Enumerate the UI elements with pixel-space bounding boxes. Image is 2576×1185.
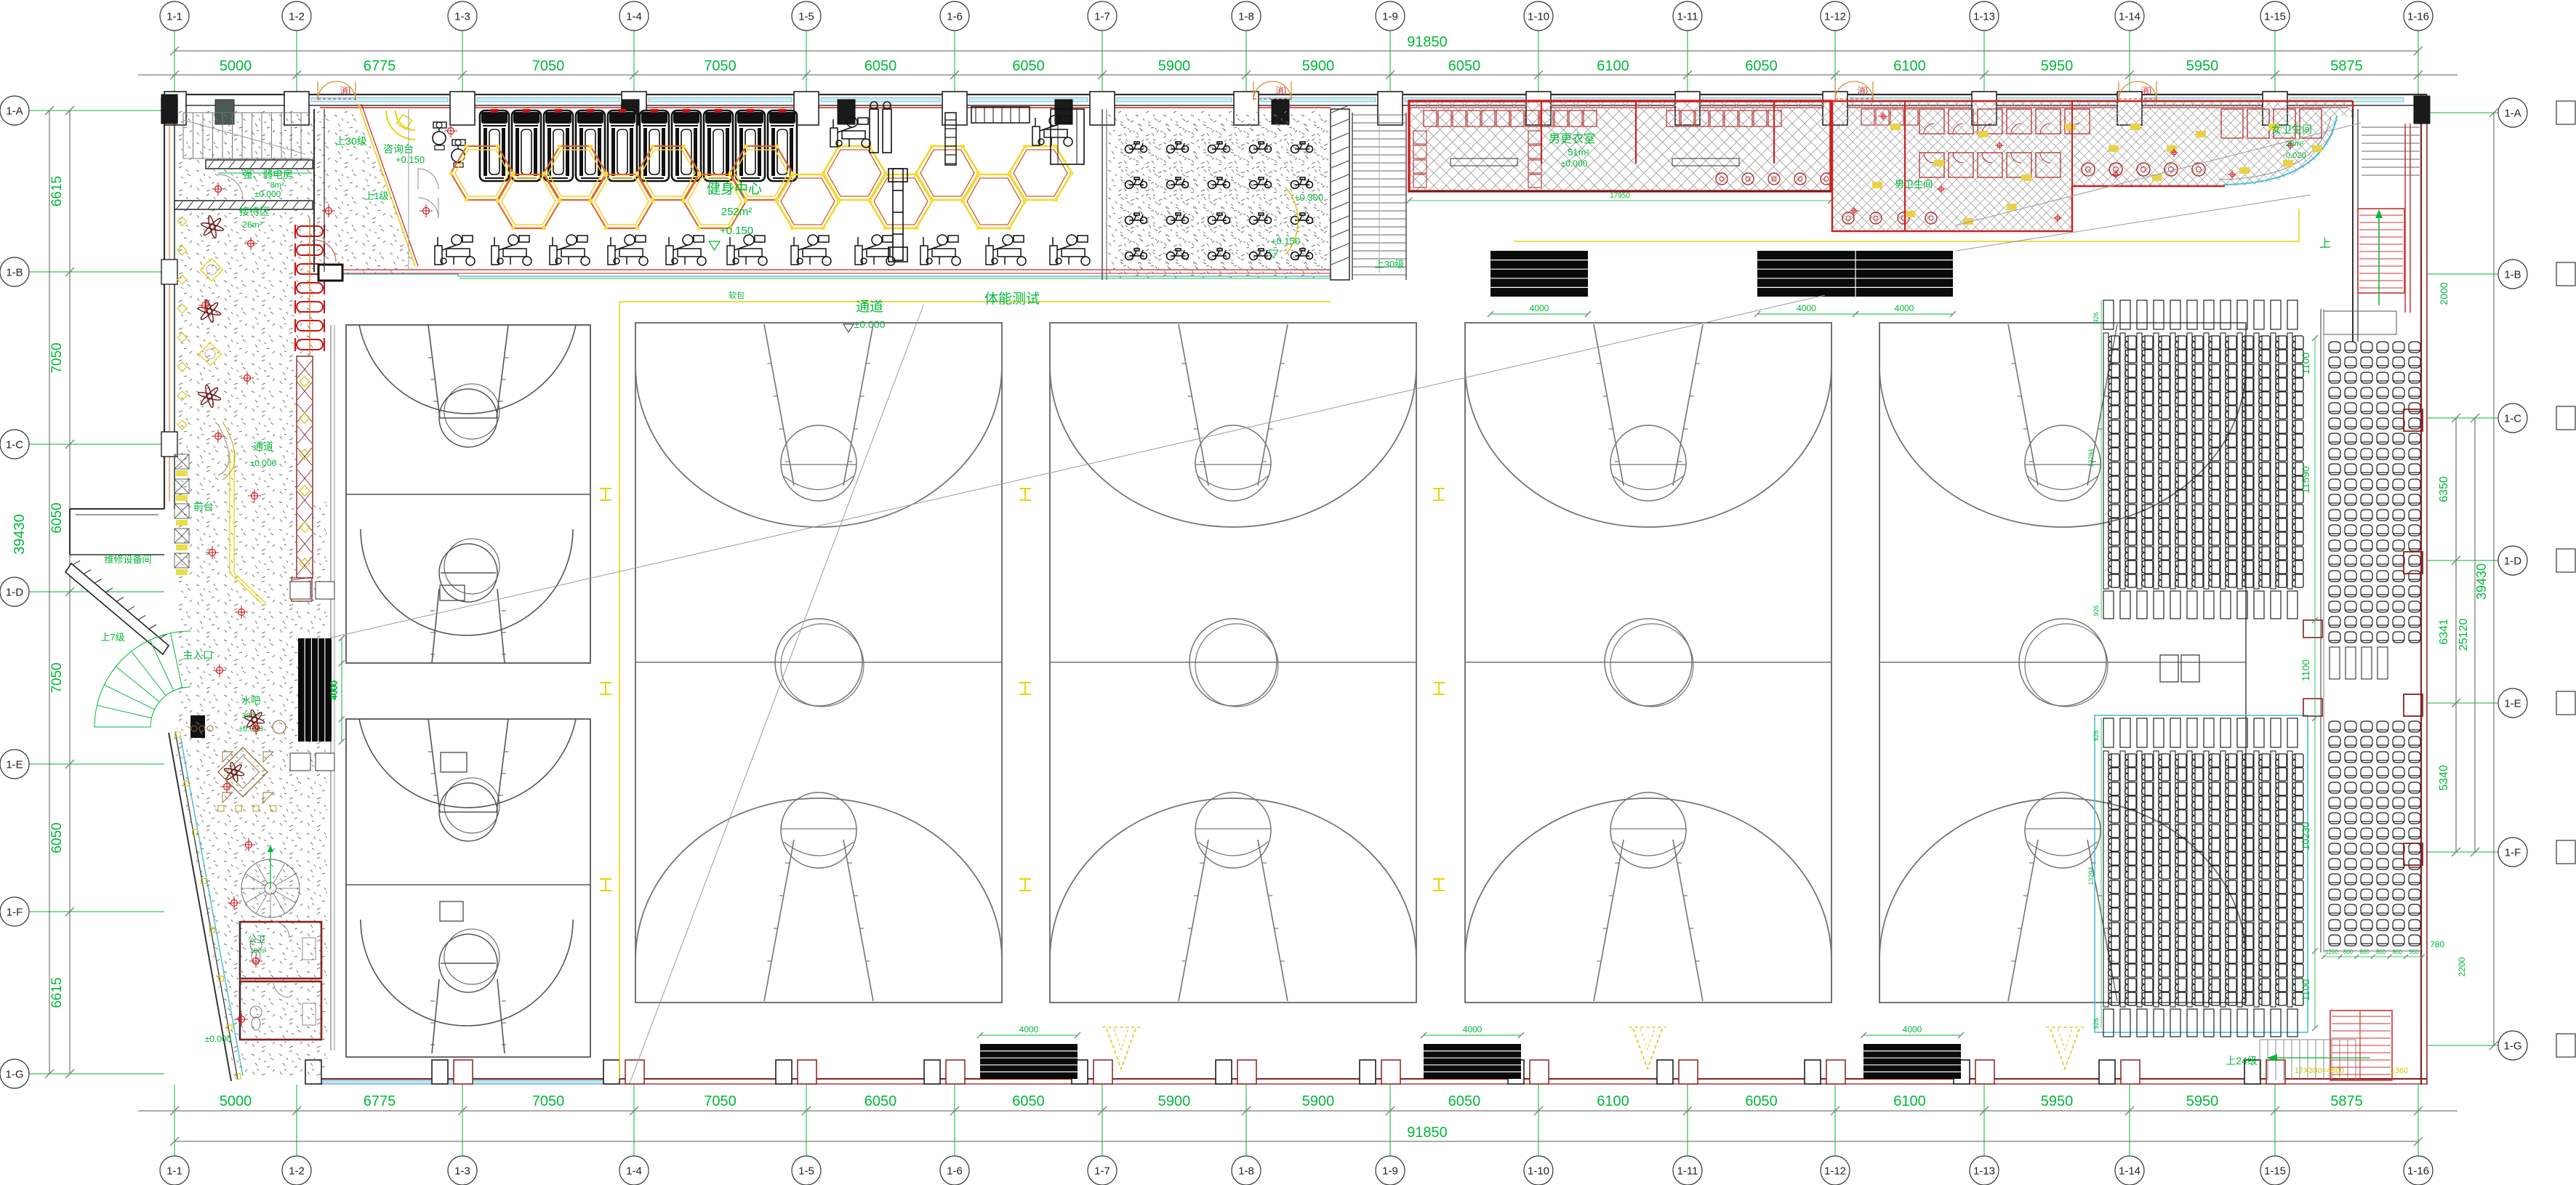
svg-text:1-A: 1-A <box>2504 108 2521 120</box>
svg-text:1-B: 1-B <box>6 267 23 279</box>
svg-text:接待区: 接待区 <box>239 206 270 217</box>
svg-text:6050: 6050 <box>864 1093 897 1109</box>
svg-text:25120: 25120 <box>2457 619 2470 651</box>
svg-text:+0.150: +0.150 <box>720 225 753 237</box>
svg-text:1-9: 1-9 <box>1382 1165 1398 1178</box>
svg-text:1-14: 1-14 <box>2119 11 2140 23</box>
svg-text:7050: 7050 <box>49 342 65 373</box>
svg-text:1-8: 1-8 <box>1238 1165 1254 1178</box>
svg-text:1200: 1200 <box>2325 949 2338 955</box>
svg-text:11590: 11590 <box>2300 466 2311 494</box>
svg-text:上30级: 上30级 <box>1375 259 1404 270</box>
svg-text:91850: 91850 <box>1407 1125 1448 1141</box>
svg-text:±0.000: ±0.000 <box>254 189 281 199</box>
svg-text:4000: 4000 <box>329 680 339 700</box>
svg-text:5950: 5950 <box>2041 58 2074 74</box>
svg-text:6050: 6050 <box>1448 58 1481 74</box>
svg-text:1-1: 1-1 <box>166 1165 182 1178</box>
svg-text:1-C: 1-C <box>2504 413 2521 425</box>
svg-text:926: 926 <box>2093 312 2100 323</box>
svg-text:800: 800 <box>2393 949 2403 955</box>
svg-text:1-2: 1-2 <box>289 11 305 23</box>
svg-text:926: 926 <box>2093 605 2100 616</box>
svg-text:6775: 6775 <box>364 1093 396 1109</box>
svg-text:维修设备间: 维修设备间 <box>104 554 151 565</box>
svg-text:+0.300: +0.300 <box>1294 192 1323 203</box>
svg-text:1100: 1100 <box>2300 979 2311 1001</box>
svg-text:1-3: 1-3 <box>454 1165 470 1178</box>
svg-text:7050: 7050 <box>532 1093 565 1109</box>
svg-text:±0.000: ±0.000 <box>250 458 277 468</box>
svg-text:健身中心: 健身中心 <box>707 181 762 197</box>
svg-text:1-C: 1-C <box>6 439 23 451</box>
svg-text:550: 550 <box>2409 949 2419 955</box>
svg-text:1-15: 1-15 <box>2264 11 2286 23</box>
svg-text:软包: 软包 <box>729 290 745 300</box>
svg-text:13294: 13294 <box>2087 867 2095 885</box>
svg-text:1-13: 1-13 <box>1973 11 1995 23</box>
svg-text:1100: 1100 <box>2300 659 2311 681</box>
svg-text:5875: 5875 <box>2330 58 2363 74</box>
svg-text:6050: 6050 <box>49 822 65 853</box>
svg-text:780: 780 <box>2430 939 2444 949</box>
svg-text:1-D: 1-D <box>6 587 23 599</box>
svg-text:800: 800 <box>2343 949 2354 955</box>
svg-text:5950: 5950 <box>2186 1093 2219 1109</box>
svg-text:1-F: 1-F <box>7 907 23 919</box>
svg-text:5900: 5900 <box>1302 58 1335 74</box>
svg-text:2200: 2200 <box>2457 957 2467 976</box>
svg-text:1-13: 1-13 <box>1973 1165 1995 1178</box>
svg-text:1-B: 1-B <box>2504 269 2521 281</box>
svg-text:咨询台: 咨询台 <box>383 143 414 155</box>
svg-text:体能测试: 体能测试 <box>984 291 1040 307</box>
svg-text:51m²: 51m² <box>1568 147 1589 158</box>
svg-text:1-10: 1-10 <box>1528 1165 1549 1178</box>
svg-text:26m²: 26m² <box>242 220 262 230</box>
svg-text:6615: 6615 <box>49 977 65 1008</box>
svg-text:5875: 5875 <box>2330 1093 2363 1109</box>
svg-text:男卫生间: 男卫生间 <box>1895 179 1933 190</box>
svg-text:1-12: 1-12 <box>1824 11 1846 23</box>
svg-text:消}: 消} <box>1276 85 1287 95</box>
svg-text:7050: 7050 <box>704 1093 737 1109</box>
svg-text:1-12: 1-12 <box>1824 1165 1846 1178</box>
svg-text:5950: 5950 <box>2041 1093 2074 1109</box>
svg-text:926: 926 <box>2093 730 2100 741</box>
svg-text:1-4: 1-4 <box>626 11 642 23</box>
svg-text:6050: 6050 <box>1448 1093 1481 1109</box>
svg-text:6100: 6100 <box>1893 58 1926 74</box>
svg-text:上1级: 上1级 <box>364 190 388 201</box>
svg-text:前台: 前台 <box>193 501 214 513</box>
svg-text:5900: 5900 <box>1158 58 1191 74</box>
svg-text:上30级: 上30级 <box>335 135 367 147</box>
svg-text:±0.000: ±0.000 <box>205 1034 232 1044</box>
svg-text:7050: 7050 <box>704 58 737 74</box>
svg-text:39430: 39430 <box>12 514 28 555</box>
svg-text:6050: 6050 <box>49 502 65 533</box>
svg-text:6050: 6050 <box>1745 58 1778 74</box>
svg-text:消}: 消} <box>340 85 351 95</box>
svg-text:6100: 6100 <box>1893 1093 1926 1109</box>
svg-text:±0.000: ±0.000 <box>1561 158 1588 169</box>
svg-text:4000: 4000 <box>1530 303 1549 313</box>
svg-text:1-3: 1-3 <box>454 11 470 23</box>
svg-text:1100: 1100 <box>2300 353 2311 374</box>
svg-text:上7级: 上7级 <box>100 632 124 643</box>
svg-text:1-G: 1-G <box>2503 1040 2521 1053</box>
svg-text:800: 800 <box>2376 949 2386 955</box>
svg-text:1-6: 1-6 <box>947 11 963 23</box>
svg-text:女卫生间: 女卫生间 <box>2271 124 2312 135</box>
svg-text:6775: 6775 <box>364 58 396 74</box>
svg-text:17X300=4800: 17X300=4800 <box>2295 1066 2345 1075</box>
svg-text:1-8: 1-8 <box>1238 11 1254 23</box>
svg-text:4000: 4000 <box>1903 1024 1922 1035</box>
svg-text:1-7: 1-7 <box>1094 11 1110 23</box>
svg-text:13294: 13294 <box>2087 449 2095 467</box>
svg-text:2000: 2000 <box>2438 282 2449 305</box>
svg-text:4000: 4000 <box>1797 303 1816 313</box>
svg-text:6350: 6350 <box>2438 476 2450 502</box>
svg-text:6050: 6050 <box>1012 58 1045 74</box>
svg-text:17950: 17950 <box>1610 192 1630 200</box>
svg-text:5000: 5000 <box>220 1093 252 1109</box>
svg-text:4000: 4000 <box>1895 303 1914 313</box>
svg-text:4000: 4000 <box>1463 1024 1482 1035</box>
svg-text:39430: 39430 <box>2474 563 2489 600</box>
svg-text:1-E: 1-E <box>2504 698 2521 710</box>
svg-text:1-7: 1-7 <box>1094 1165 1110 1178</box>
svg-text:10230: 10230 <box>2300 822 2311 850</box>
svg-text:+0.150: +0.150 <box>1271 236 1300 246</box>
svg-text:通道: 通道 <box>856 299 883 315</box>
svg-text:1-G: 1-G <box>5 1069 23 1081</box>
svg-text:926: 926 <box>2093 1018 2100 1029</box>
svg-text:6341: 6341 <box>2438 619 2450 645</box>
svg-text:±0.000: ±0.000 <box>854 318 886 330</box>
svg-text:水吧: 水吧 <box>241 695 260 706</box>
svg-text:消}: 消} <box>1858 85 1869 95</box>
svg-text:800: 800 <box>2360 949 2370 955</box>
svg-text:1-6: 1-6 <box>947 1165 963 1178</box>
svg-text:4000: 4000 <box>1019 1024 1039 1035</box>
svg-text:-0.020: -0.020 <box>2283 151 2306 160</box>
svg-text:91850: 91850 <box>1407 34 1448 50</box>
svg-text:1-10: 1-10 <box>1528 11 1549 23</box>
svg-text:1-16: 1-16 <box>2407 11 2429 23</box>
svg-text:7050: 7050 <box>49 662 65 693</box>
svg-text:1-F: 1-F <box>2505 847 2521 859</box>
svg-text:5000: 5000 <box>220 58 252 74</box>
svg-text:6100: 6100 <box>1597 1093 1629 1109</box>
svg-text:6100: 6100 <box>1597 58 1629 74</box>
svg-text:1-2: 1-2 <box>289 1165 305 1178</box>
svg-text:通道: 通道 <box>253 441 273 452</box>
svg-text:5950: 5950 <box>2186 58 2219 74</box>
svg-text:5900: 5900 <box>1302 1093 1335 1109</box>
svg-text:1-14: 1-14 <box>2119 1165 2140 1178</box>
svg-text:1-16: 1-16 <box>2407 1165 2429 1178</box>
svg-text:6050: 6050 <box>864 58 897 74</box>
svg-text:1-9: 1-9 <box>1382 11 1398 23</box>
svg-text:1-A: 1-A <box>6 105 23 118</box>
svg-text:5900: 5900 <box>1158 1093 1191 1109</box>
svg-text:1-4: 1-4 <box>626 1165 642 1178</box>
svg-text:6050: 6050 <box>1745 1093 1778 1109</box>
svg-text:男更衣室: 男更衣室 <box>1549 132 1595 145</box>
svg-text:7050: 7050 <box>532 58 565 74</box>
svg-text:5340: 5340 <box>2438 765 2450 791</box>
svg-text:1-5: 1-5 <box>798 1165 814 1178</box>
svg-text:6615: 6615 <box>49 176 65 206</box>
svg-text:1-11: 1-11 <box>1677 1165 1698 1178</box>
svg-text:1-1: 1-1 <box>166 11 182 23</box>
svg-text:1-11: 1-11 <box>1677 11 1698 23</box>
svg-text:6050: 6050 <box>1012 1093 1045 1109</box>
svg-text:1-D: 1-D <box>2504 555 2521 568</box>
svg-text:+0.150: +0.150 <box>396 154 425 165</box>
svg-text:1360: 1360 <box>2391 1066 2408 1075</box>
svg-text:1-15: 1-15 <box>2264 1165 2286 1178</box>
svg-text:强、弱电房: 强、弱电房 <box>242 169 293 180</box>
svg-text:1-E: 1-E <box>6 759 23 771</box>
svg-text:消}: 消} <box>2141 85 2152 95</box>
svg-text:1-5: 1-5 <box>798 11 814 23</box>
svg-text:252m²: 252m² <box>721 206 753 218</box>
svg-text:上: 上 <box>2319 237 2331 250</box>
svg-text:上24级: 上24级 <box>2226 1055 2258 1066</box>
